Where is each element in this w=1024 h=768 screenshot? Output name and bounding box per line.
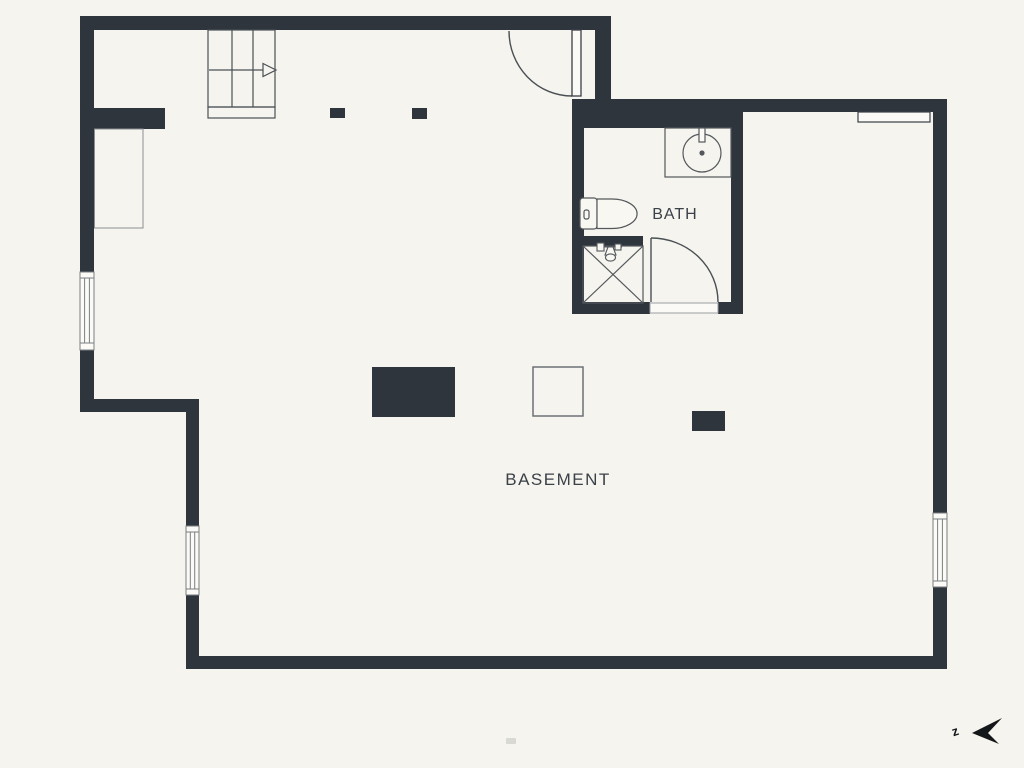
wall-stub-left	[94, 108, 165, 129]
wall-right-upper	[933, 99, 947, 513]
post-column-1	[330, 108, 345, 118]
door-swing-arc	[651, 238, 718, 302]
wall-jog	[80, 399, 199, 412]
stairs-arrowhead	[263, 64, 276, 77]
wall-top-right	[743, 99, 947, 112]
room-label-basement: BASEMENT	[498, 470, 618, 490]
door-threshold	[650, 303, 718, 313]
toilet-bowl	[597, 199, 637, 229]
wall-shower-divider	[583, 236, 643, 246]
wall-left-lower-b	[186, 595, 199, 656]
room-label-bath: BATH	[644, 206, 706, 224]
wall-left-upper	[80, 16, 94, 272]
wall-bath-bottom-right	[718, 302, 743, 314]
sink-drain	[699, 150, 704, 155]
sink-faucet	[699, 128, 705, 142]
closet-outline	[95, 129, 144, 228]
furniture-block-large	[372, 367, 455, 417]
windows	[80, 272, 947, 595]
wall-left-lower-a	[186, 412, 199, 526]
entry-door	[509, 30, 581, 96]
stairs-up-arrow-icon	[208, 30, 276, 118]
post-column-2	[412, 108, 427, 119]
floor-plan: BASEMENT BATH z	[0, 0, 1024, 768]
walls	[80, 16, 947, 669]
wall-bath-bottom-left	[572, 302, 650, 314]
toilet-icon	[580, 198, 637, 229]
wall-connector	[595, 30, 611, 102]
door-leaf	[572, 30, 581, 96]
furniture	[95, 112, 931, 431]
double-line-window-icon-right	[933, 513, 947, 587]
wall-bath-right	[731, 112, 743, 314]
wall-top-main	[80, 16, 611, 30]
bath-door	[650, 238, 718, 313]
north-arrow-icon	[972, 718, 1002, 744]
double-line-window-icon-left-upper	[80, 272, 94, 350]
round-basin-sink-icon	[665, 128, 731, 177]
ledge-outline	[858, 112, 930, 122]
double-line-window-icon-left-lower	[186, 526, 199, 595]
shower-stall-cross-icon	[583, 243, 643, 303]
wall-bath-top	[572, 99, 743, 128]
door-swing-arc	[509, 31, 572, 96]
furniture-block-small	[692, 411, 725, 431]
wall-right-lower	[933, 587, 947, 669]
wall-bottom	[186, 656, 947, 669]
floor-plan-canvas	[0, 0, 1024, 768]
furniture-outline-square	[533, 367, 583, 416]
watermark-dot	[506, 738, 516, 744]
